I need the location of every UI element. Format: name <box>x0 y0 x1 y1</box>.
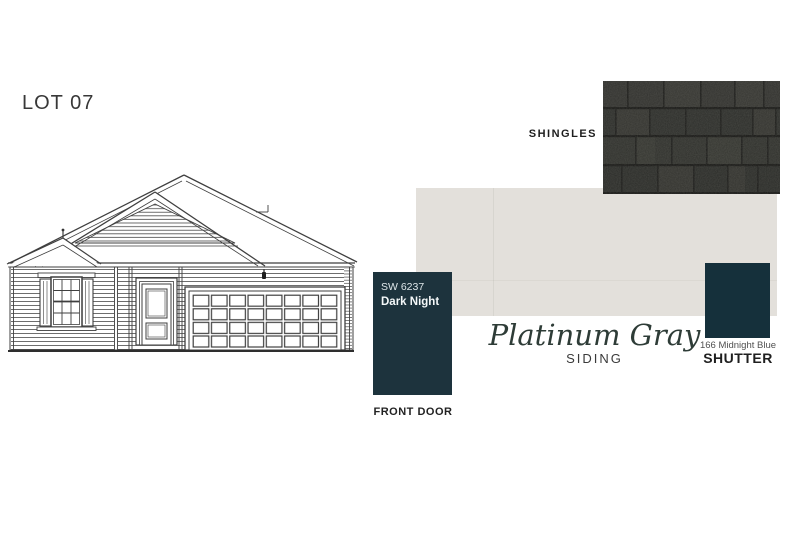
front-door-color-name: Dark Night <box>381 295 446 311</box>
house-elevation-svg <box>5 166 360 361</box>
shingles-texture <box>603 81 780 194</box>
siding-swatch-seam <box>493 188 494 316</box>
front-door-swatch: SW 6237 Dark Night <box>373 272 452 395</box>
selection-sheet-page: LOT 07 <box>0 0 787 547</box>
shutter-label: SHUTTER <box>694 350 782 366</box>
lot-label: LOT 07 <box>22 92 94 115</box>
front-door-color-code: SW 6237 <box>381 281 446 295</box>
shingles-label: SHINGLES <box>520 128 597 140</box>
siding-color-name: Platinum Gray <box>487 318 702 352</box>
front-door-label: FRONT DOOR <box>368 406 458 418</box>
house-elevation-drawing <box>5 166 360 361</box>
shutter-swatch <box>705 263 770 338</box>
siding-label: SIDING <box>487 351 702 366</box>
shingles-swatch <box>603 81 780 194</box>
